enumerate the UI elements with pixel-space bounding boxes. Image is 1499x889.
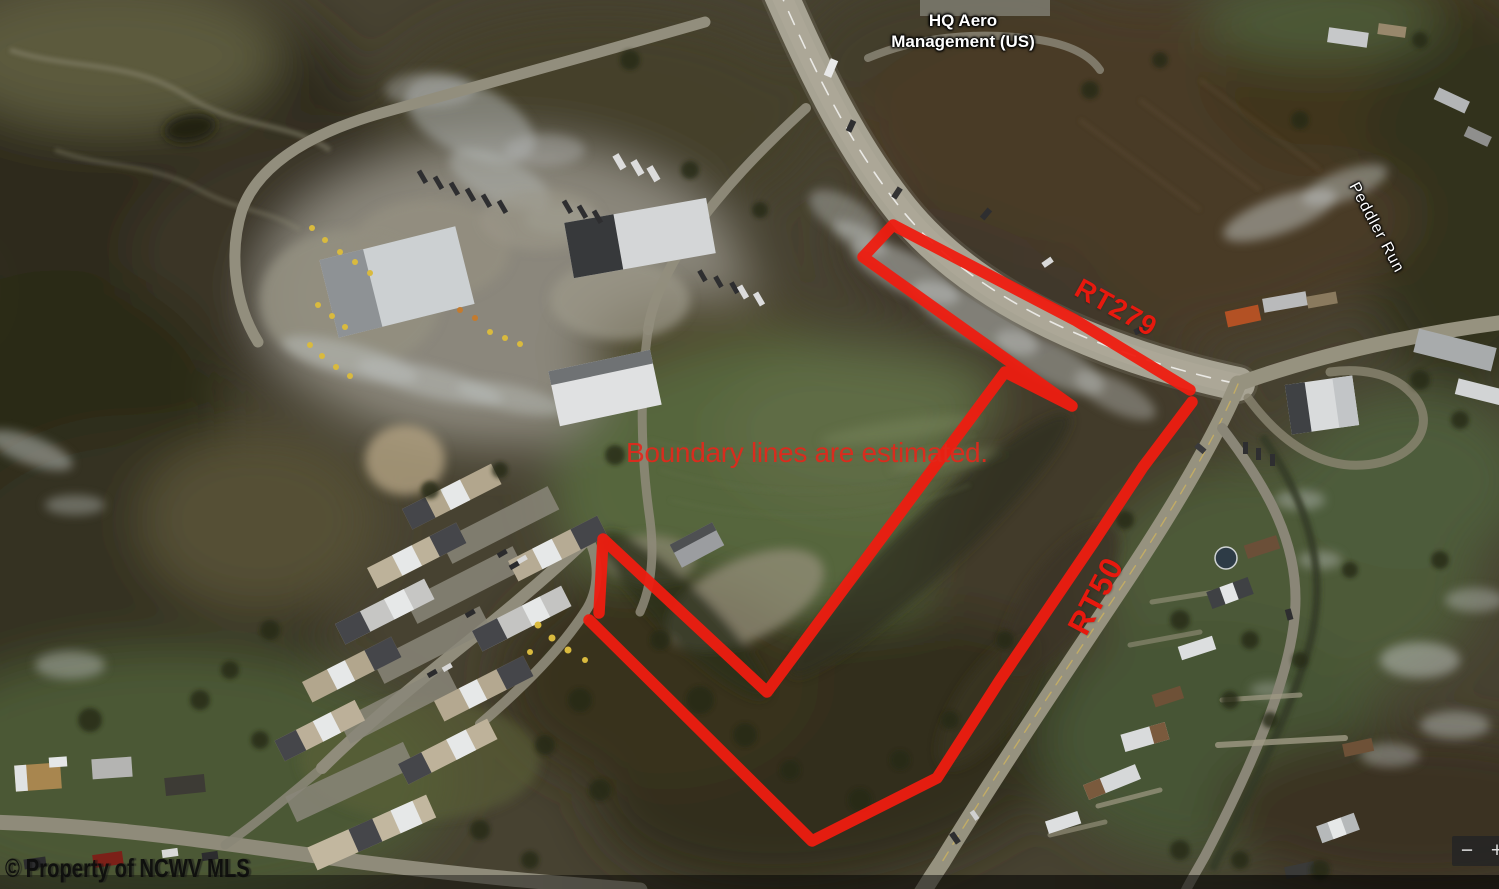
- poi-label-line1: HQ Aero: [891, 10, 1035, 31]
- poi-label-hq-aero[interactable]: HQ Aero Management (US): [891, 10, 1035, 53]
- watermark: © Property of NCWV MLS: [5, 853, 250, 884]
- zoom-in-button[interactable]: +: [1482, 836, 1499, 866]
- poi-label-line2: Management (US): [891, 31, 1035, 52]
- map-viewport[interactable]: HQ Aero Management (US) Peddler Run RT27…: [0, 0, 1499, 889]
- boundary-note: Boundary lines are estimated.: [626, 437, 988, 469]
- zoom-out-button[interactable]: −: [1452, 836, 1482, 866]
- zoom-control: − +: [1452, 836, 1499, 866]
